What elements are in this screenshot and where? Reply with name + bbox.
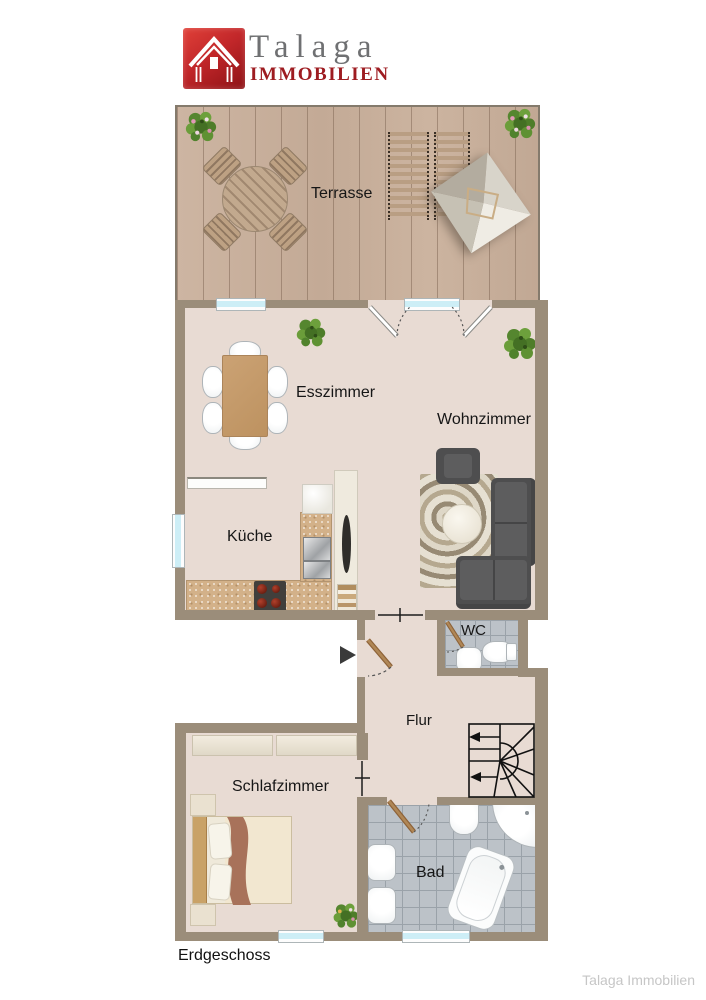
room-label-esszimmer: Esszimmer	[296, 385, 375, 401]
wall	[425, 610, 548, 620]
window	[172, 514, 185, 568]
dining-chair	[202, 402, 224, 434]
wall	[437, 620, 445, 668]
dining-table	[222, 355, 268, 437]
parasol-icon	[428, 150, 534, 256]
passage-opening	[375, 610, 425, 620]
wardrobe	[192, 735, 273, 756]
sun-lounger	[388, 132, 429, 220]
room-label-terrasse: Terrasse	[311, 186, 372, 202]
kitchen-sink	[303, 561, 331, 579]
sofa-section	[491, 478, 536, 566]
wall	[357, 733, 368, 760]
plant-icon	[332, 902, 360, 930]
bath-sink	[367, 887, 396, 924]
window	[278, 930, 324, 943]
logo-house-box	[183, 28, 245, 89]
room-label-schlafzimmer: Schlafzimmer	[232, 779, 329, 795]
stove-icon	[254, 581, 286, 612]
room-label-kueche: Küche	[227, 529, 272, 545]
kitchen-sink	[303, 537, 331, 561]
room-label-flur: Flur	[406, 713, 432, 728]
plant-icon	[503, 107, 537, 141]
wall	[535, 300, 548, 610]
wall	[175, 723, 186, 940]
dining-chair	[266, 402, 288, 434]
cabinet-decor	[342, 515, 351, 573]
bed	[192, 816, 292, 904]
wall	[175, 932, 548, 941]
wardrobe	[276, 735, 357, 756]
entrance-opening	[357, 640, 365, 677]
plant-icon	[293, 317, 329, 349]
watermark: Talaga Immobilien	[582, 972, 695, 988]
room-label-wc: WC	[461, 623, 486, 638]
wall	[175, 723, 365, 733]
room-label-bad: Bad	[416, 865, 444, 881]
dining-chair	[266, 366, 288, 398]
wall	[437, 797, 548, 805]
passage-opening	[357, 760, 368, 797]
wall	[357, 677, 365, 723]
window	[404, 298, 460, 311]
toilet-icon	[449, 800, 479, 835]
toilet-tank	[506, 643, 517, 661]
door-opening	[387, 797, 437, 805]
wall	[365, 797, 387, 805]
bath-sink	[367, 844, 396, 881]
nightstand	[190, 794, 216, 816]
dining-chair	[202, 366, 224, 398]
building-notch	[528, 620, 548, 668]
house-icon	[183, 28, 245, 89]
wall	[357, 797, 368, 932]
door-opening	[456, 300, 492, 308]
wall	[437, 668, 528, 676]
wall	[175, 300, 185, 620]
window	[402, 930, 470, 943]
room-label-wohnzimmer: Wohnzimmer	[437, 412, 531, 428]
wall	[175, 610, 375, 620]
sideboard	[187, 477, 267, 489]
wall	[535, 797, 548, 940]
coffee-table	[442, 504, 482, 544]
sofa-section	[456, 556, 531, 609]
kitchen-worktop	[302, 484, 333, 514]
nightstand	[190, 904, 216, 926]
plant-icon	[502, 324, 538, 364]
floor-level-label: Erdgeschoss	[178, 947, 271, 965]
terrace-table	[222, 166, 288, 232]
brand-name: Talaga	[249, 31, 378, 64]
floorplan-page: Talaga IMMOBILIEN Terrasse	[0, 0, 706, 1000]
wall	[518, 668, 548, 677]
wall	[357, 620, 365, 640]
brand-type: IMMOBILIEN	[250, 65, 390, 84]
window	[216, 298, 266, 311]
wall	[518, 620, 528, 668]
armchair	[436, 448, 480, 484]
entrance-arrow-icon	[340, 646, 356, 664]
towel-shelf	[337, 584, 357, 612]
plant-icon	[184, 110, 218, 144]
door-opening	[368, 300, 406, 308]
wall	[535, 677, 548, 797]
